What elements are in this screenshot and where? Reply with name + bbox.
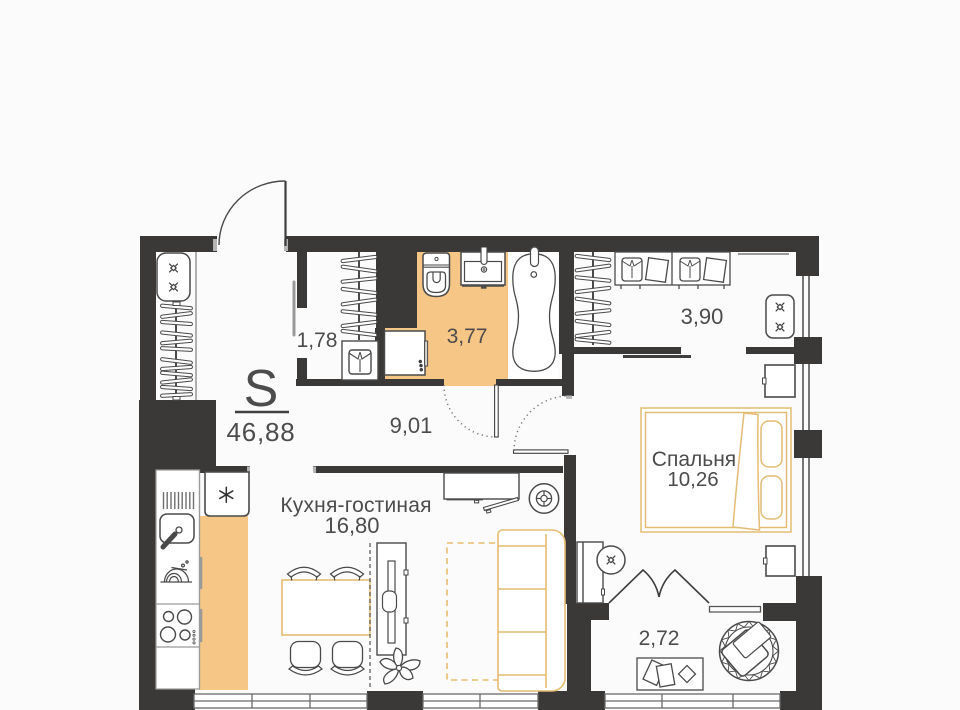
svg-text:3,77: 3,77: [447, 325, 488, 348]
svg-text:3,90: 3,90: [681, 304, 724, 329]
svg-text:16,80: 16,80: [324, 513, 379, 538]
svg-text:9,01: 9,01: [390, 413, 433, 438]
svg-text:S: S: [244, 360, 279, 418]
svg-text:10,26: 10,26: [667, 468, 718, 491]
svg-text:1,78: 1,78: [297, 329, 338, 352]
svg-text:2,72: 2,72: [639, 627, 680, 650]
svg-text:46,88: 46,88: [226, 417, 295, 447]
